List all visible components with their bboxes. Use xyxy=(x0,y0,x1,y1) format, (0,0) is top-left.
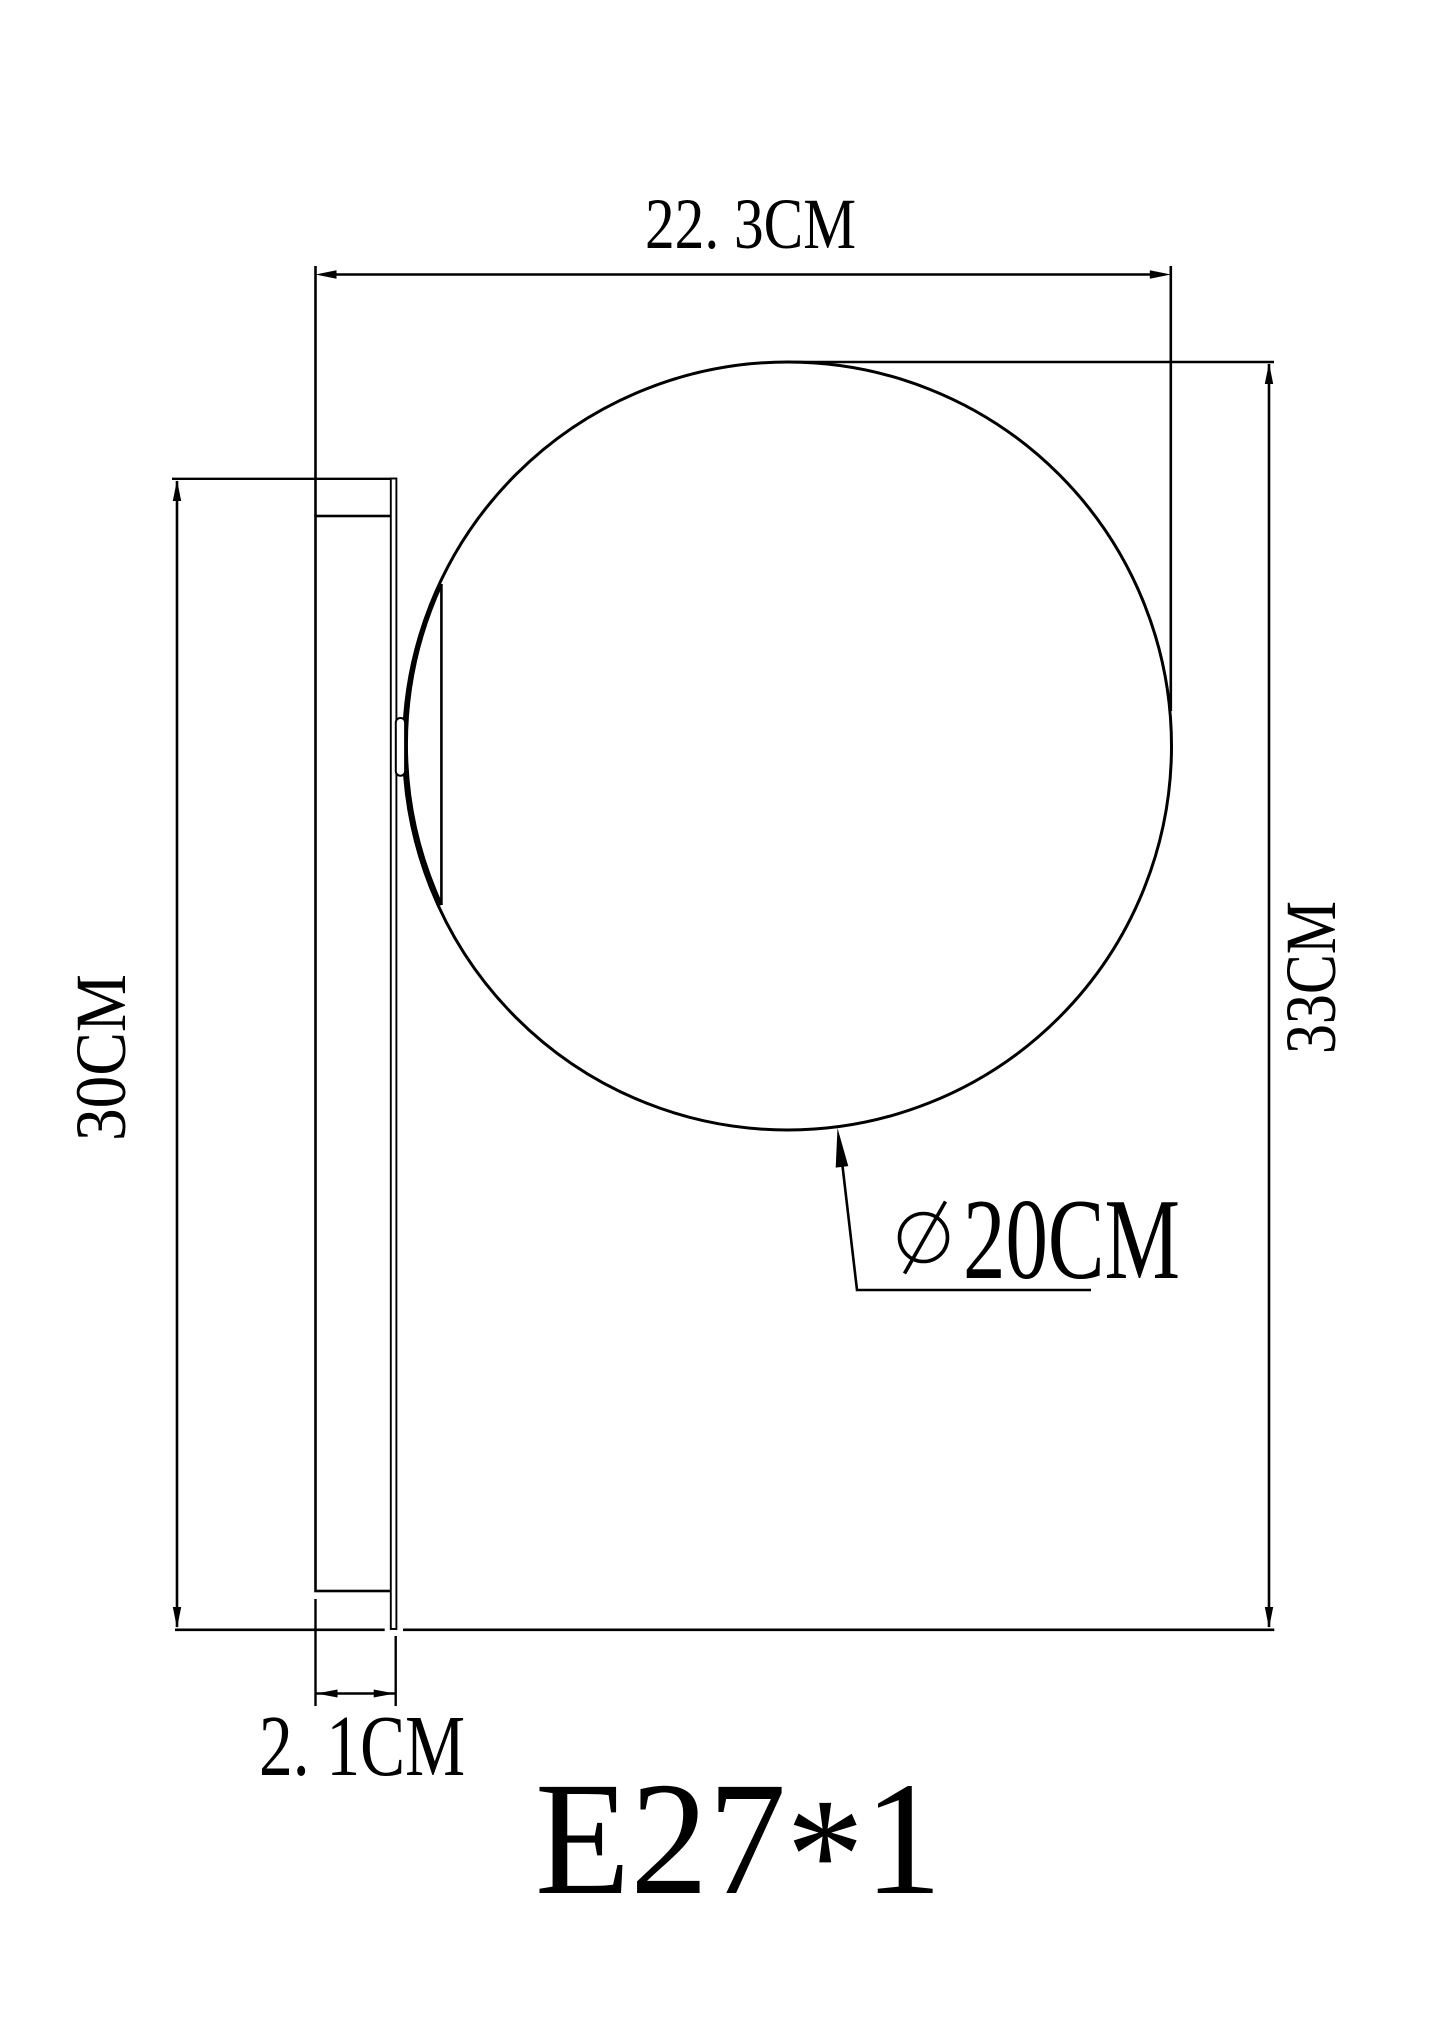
svg-text:33CM: 33CM xyxy=(1271,901,1351,1054)
svg-text:20CM: 20CM xyxy=(963,1176,1180,1303)
svg-text:2. 1CM: 2. 1CM xyxy=(259,1697,465,1794)
svg-text:30CM: 30CM xyxy=(61,974,141,1141)
svg-text:E27*1: E27*1 xyxy=(535,1750,942,1945)
svg-text:22. 3CM: 22. 3CM xyxy=(645,184,856,264)
